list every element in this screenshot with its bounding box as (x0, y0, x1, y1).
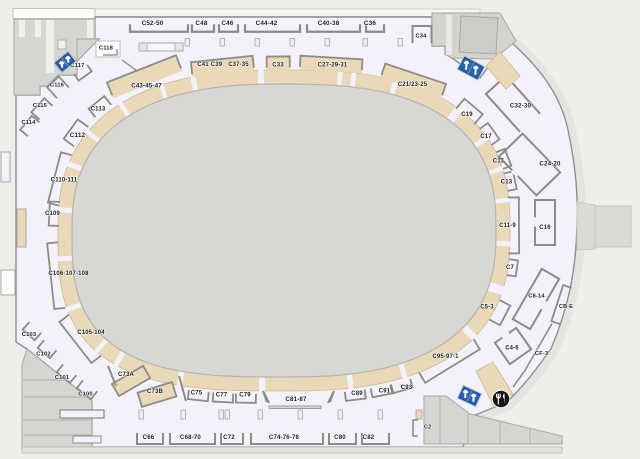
svg-text:C21/23-25: C21/23-25 (398, 82, 428, 88)
svg-text:C19: C19 (461, 112, 473, 118)
svg-text:C105-104: C105-104 (77, 330, 105, 336)
svg-text:C75: C75 (191, 391, 203, 397)
svg-text:C5-3: C5-3 (480, 305, 494, 311)
svg-text:C95-97-1: C95-97-1 (432, 354, 459, 360)
svg-text:C44-42: C44-42 (256, 20, 278, 27)
svg-text:C34: C34 (415, 34, 427, 40)
svg-text:C112: C112 (70, 132, 86, 139)
svg-text:C4-6: C4-6 (505, 346, 519, 352)
svg-text:C17: C17 (480, 134, 492, 140)
svg-text:C100: C100 (78, 392, 92, 398)
svg-text:C7: C7 (506, 265, 514, 271)
svg-text:C36: C36 (364, 20, 376, 27)
svg-text:C89: C89 (351, 391, 363, 397)
svg-text:C91: C91 (379, 389, 391, 395)
svg-text:C113: C113 (91, 107, 106, 113)
svg-text:CF-3: CF-3 (535, 351, 549, 357)
svg-text:C8-14: C8-14 (528, 294, 545, 300)
svg-text:C118: C118 (99, 45, 114, 51)
svg-text:C77: C77 (216, 393, 228, 399)
svg-text:C39: C39 (211, 62, 223, 68)
svg-text:C109: C109 (45, 211, 60, 217)
svg-text:CB-E: CB-E (559, 304, 573, 310)
svg-text:C93: C93 (401, 385, 413, 391)
svg-text:C68-70: C68-70 (180, 434, 201, 441)
svg-text:C46: C46 (221, 20, 233, 27)
svg-text:C2: C2 (424, 424, 431, 430)
svg-text:C72: C72 (223, 434, 235, 441)
svg-text:C115: C115 (33, 103, 48, 109)
svg-text:C79: C79 (239, 393, 251, 399)
svg-text:C81-87: C81-87 (285, 396, 307, 403)
svg-text:C11-9: C11-9 (499, 223, 516, 229)
svg-text:C33: C33 (272, 63, 284, 69)
svg-text:C32-30: C32-30 (510, 103, 532, 110)
svg-text:C116: C116 (50, 83, 65, 89)
svg-text:C106-107-108: C106-107-108 (48, 271, 89, 277)
svg-text:C41: C41 (197, 62, 209, 68)
svg-text:C110-111: C110-111 (51, 178, 78, 184)
svg-text:C52-50: C52-50 (142, 20, 164, 27)
svg-text:C74-76-78: C74-76-78 (269, 434, 300, 441)
svg-text:C27-29-31: C27-29-31 (318, 63, 348, 69)
svg-text:C114: C114 (21, 120, 36, 126)
svg-text:C16: C16 (539, 225, 551, 231)
svg-text:C24-20: C24-20 (539, 161, 561, 168)
svg-text:C73A: C73A (118, 372, 134, 378)
svg-text:C103: C103 (22, 332, 37, 338)
svg-text:C102: C102 (36, 352, 50, 358)
svg-text:C66: C66 (143, 434, 155, 441)
svg-text:C48: C48 (195, 20, 207, 27)
svg-text:C13: C13 (501, 180, 513, 186)
svg-text:C40-38: C40-38 (318, 20, 340, 27)
svg-text:C73B: C73B (147, 389, 163, 395)
svg-text:C82: C82 (363, 434, 375, 441)
svg-text:C43-45-47: C43-45-47 (131, 83, 162, 90)
svg-text:C37-35: C37-35 (228, 62, 249, 68)
svg-text:C101: C101 (55, 375, 70, 381)
svg-text:C80: C80 (334, 434, 346, 441)
